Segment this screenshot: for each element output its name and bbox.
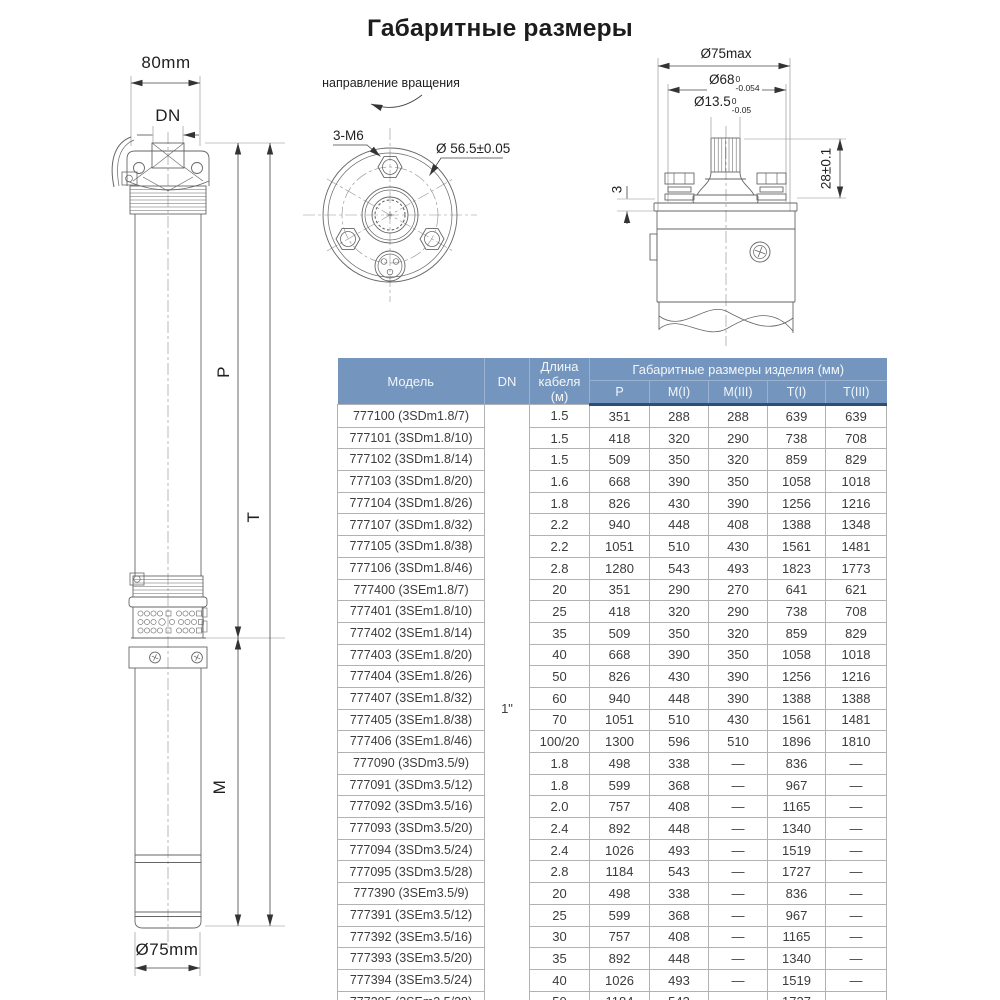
cell-miii: —: [709, 926, 768, 948]
table-row: 777107 (3SDm1.8/32)2.294044840813881348: [338, 514, 887, 536]
dim-d135-base: Ø13.5: [694, 94, 731, 109]
cell-mi: 543: [650, 861, 709, 883]
table-row: 777106 (3SDm1.8/46)2.8128054349318231773: [338, 557, 887, 579]
cell-miii: —: [709, 796, 768, 818]
cell-mi: 493: [650, 839, 709, 861]
cell-ti: 1519: [768, 969, 826, 991]
cell-mi: 510: [650, 709, 709, 731]
dim-d68-label: Ø680-0.054: [707, 72, 762, 95]
cell-model: 777403 (3SEm1.8/20): [338, 644, 485, 666]
cell-ti: 1165: [768, 796, 826, 818]
cell-ti: 639: [768, 405, 826, 428]
cell-model: 777093 (3SDm3.5/20): [338, 818, 485, 840]
cell-ti: 1340: [768, 818, 826, 840]
cell-ti: 738: [768, 427, 826, 449]
cell-model: 777394 (3SEm3.5/24): [338, 969, 485, 991]
cell-p: 826: [590, 666, 650, 688]
cell-ti: 1058: [768, 471, 826, 493]
cell-mi: 596: [650, 731, 709, 753]
cell-cable: 20: [530, 883, 590, 905]
cell-p: 1184: [590, 861, 650, 883]
cell-model: 777104 (3SDm1.8/26): [338, 492, 485, 514]
cell-ti: 1727: [768, 861, 826, 883]
table-row: 777401 (3SEm1.8/10)25418320290738708: [338, 601, 887, 623]
cell-p: 509: [590, 449, 650, 471]
cell-cable: 35: [530, 948, 590, 970]
cell-p: 757: [590, 796, 650, 818]
cell-tiii: —: [826, 818, 887, 840]
cell-p: 940: [590, 514, 650, 536]
dim-d68-lower-tol: -0.054: [736, 84, 760, 93]
table-row: 777393 (3SEm3.5/20)35892448—1340—: [338, 948, 887, 970]
col-header-p: P: [590, 381, 650, 405]
cell-mi: 408: [650, 926, 709, 948]
cell-cable: 60: [530, 687, 590, 709]
cell-miii: —: [709, 948, 768, 970]
bolt-spec-label: 3-М6: [331, 128, 366, 143]
cell-mi: 430: [650, 666, 709, 688]
dim-width-label: 80mm: [131, 53, 201, 73]
cell-ti: 1727: [768, 991, 826, 1000]
cell-tiii: 1388: [826, 687, 887, 709]
spec-table: Модель DN Длина кабеля (м) Габаритные ра…: [337, 358, 886, 1000]
table-row: 777392 (3SEm3.5/16)30757408—1165—: [338, 926, 887, 948]
cell-mi: 493: [650, 969, 709, 991]
cell-mi: 350: [650, 449, 709, 471]
table-row: 777402 (3SEm1.8/14)35509350320859829: [338, 622, 887, 644]
cell-miii: —: [709, 818, 768, 840]
cell-cable: 1.5: [530, 405, 590, 428]
cell-cable: 2.0: [530, 796, 590, 818]
cell-tiii: —: [826, 839, 887, 861]
cell-p: 418: [590, 427, 650, 449]
cell-p: 351: [590, 405, 650, 428]
cell-model: 777091 (3SDm3.5/12): [338, 774, 485, 796]
cell-ti: 1256: [768, 492, 826, 514]
cell-tiii: —: [826, 991, 887, 1000]
cell-cable: 1.8: [530, 774, 590, 796]
col-header-dn: DN: [485, 358, 530, 405]
cell-cable: 70: [530, 709, 590, 731]
cell-ti: 1561: [768, 536, 826, 558]
dim-diameter-label: Ø75mm: [112, 940, 222, 960]
table-row: 777102 (3SDm1.8/14)1.5509350320859829: [338, 449, 887, 471]
cell-model: 777090 (3SDm3.5/9): [338, 753, 485, 775]
table-row: 777104 (3SDm1.8/26)1.882643039012561216: [338, 492, 887, 514]
cell-tiii: —: [826, 926, 887, 948]
cell-mi: 338: [650, 753, 709, 775]
cell-p: 509: [590, 622, 650, 644]
cell-mi: 320: [650, 427, 709, 449]
cell-p: 351: [590, 579, 650, 601]
datasheet-page: Габаритные размеры: [0, 0, 1000, 1000]
table-row: 777101 (3SDm1.8/10)1.5418320290738708: [338, 427, 887, 449]
cell-p: 1300: [590, 731, 650, 753]
cell-p: 668: [590, 471, 650, 493]
cell-p: 892: [590, 948, 650, 970]
cell-model: 777407 (3SEm1.8/32): [338, 687, 485, 709]
cell-miii: 290: [709, 601, 768, 623]
cell-mi: 368: [650, 904, 709, 926]
table-row: 777395 (3SEm3.5/28)501184543—1727—: [338, 991, 887, 1000]
cell-mi: 448: [650, 514, 709, 536]
cell-tiii: —: [826, 904, 887, 926]
cell-miii: 290: [709, 427, 768, 449]
table-row: 777093 (3SDm3.5/20)2.4892448—1340—: [338, 818, 887, 840]
cell-model: 777105 (3SDm1.8/38): [338, 536, 485, 558]
col-header-dimensions-group: Габаритные размеры изделия (мм): [590, 358, 887, 381]
cell-cable: 2.8: [530, 557, 590, 579]
table-row: 777103 (3SDm1.8/20)1.666839035010581018: [338, 471, 887, 493]
cell-model: 777095 (3SDm3.5/28): [338, 861, 485, 883]
cell-cable: 2.4: [530, 818, 590, 840]
cell-cable: 1.8: [530, 492, 590, 514]
cell-ti: 738: [768, 601, 826, 623]
cell-cable: 2.4: [530, 839, 590, 861]
cell-ti: 1519: [768, 839, 826, 861]
cell-tiii: —: [826, 774, 887, 796]
cell-p: 1051: [590, 536, 650, 558]
cell-ti: 1340: [768, 948, 826, 970]
cell-mi: 543: [650, 991, 709, 1000]
cell-model: 777392 (3SEm3.5/16): [338, 926, 485, 948]
cell-miii: —: [709, 904, 768, 926]
cell-ti: 967: [768, 904, 826, 926]
cell-tiii: 1810: [826, 731, 887, 753]
cell-tiii: —: [826, 948, 887, 970]
cell-cable: 1.5: [530, 427, 590, 449]
table-row: 777406 (3SEm1.8/46)100/20130059651018961…: [338, 731, 887, 753]
cell-mi: 368: [650, 774, 709, 796]
table-row: 777394 (3SEm3.5/24)401026493—1519—: [338, 969, 887, 991]
table-row: 777094 (3SDm3.5/24)2.41026493—1519—: [338, 839, 887, 861]
table-row: 777400 (3SEm1.8/7)20351290270641621: [338, 579, 887, 601]
table-row: 777090 (3SDm3.5/9)1.8498338—836—: [338, 753, 887, 775]
cell-cable: 100/20: [530, 731, 590, 753]
table-row: 777105 (3SDm1.8/38)2.2105151043015611481: [338, 536, 887, 558]
cell-cable: 40: [530, 644, 590, 666]
cell-mi: 510: [650, 536, 709, 558]
cell-model: 777404 (3SEm1.8/26): [338, 666, 485, 688]
table-row: 777403 (3SEm1.8/20)4066839035010581018: [338, 644, 887, 666]
cell-tiii: 1481: [826, 536, 887, 558]
cell-cable: 20: [530, 579, 590, 601]
cell-cable: 1.8: [530, 753, 590, 775]
cell-tiii: 639: [826, 405, 887, 428]
cell-cable: 2.2: [530, 514, 590, 536]
col-header-ti: T(I): [768, 381, 826, 405]
cell-model: 777103 (3SDm1.8/20): [338, 471, 485, 493]
col-header-mi: M(I): [650, 381, 709, 405]
cell-model: 777400 (3SEm1.8/7): [338, 579, 485, 601]
cell-mi: 448: [650, 948, 709, 970]
cell-p: 1280: [590, 557, 650, 579]
table-row: 777407 (3SEm1.8/32)6094044839013881388: [338, 687, 887, 709]
cell-tiii: 1018: [826, 644, 887, 666]
cell-miii: —: [709, 774, 768, 796]
cell-mi: 448: [650, 818, 709, 840]
col-header-model: Модель: [338, 358, 485, 405]
cell-miii: —: [709, 883, 768, 905]
cell-mi: 543: [650, 557, 709, 579]
dim-height-label: 28±0.1: [819, 137, 834, 201]
table-row: 777405 (3SEm1.8/38)70105151043015611481: [338, 709, 887, 731]
table-row: 777391 (3SEm3.5/12)25599368—967—: [338, 904, 887, 926]
cell-cable: 35: [530, 622, 590, 644]
cell-mi: 390: [650, 644, 709, 666]
cell-cable: 50: [530, 991, 590, 1000]
cell-model: 777100 (3SDm1.8/7): [338, 405, 485, 428]
cell-model: 777405 (3SEm1.8/38): [338, 709, 485, 731]
dim-gap-label: 3: [610, 175, 625, 205]
cell-cable: 2.2: [530, 536, 590, 558]
table-row: 777091 (3SDm3.5/12)1.8599368—967—: [338, 774, 887, 796]
dim-p-label: P: [214, 355, 234, 389]
cell-cable: 1.6: [530, 471, 590, 493]
cell-tiii: 829: [826, 622, 887, 644]
cell-cable: 25: [530, 601, 590, 623]
cell-tiii: 1773: [826, 557, 887, 579]
pump-top-view: [303, 95, 503, 302]
bolt-circle-label: Ø 56.5±0.05: [434, 141, 512, 156]
cell-model: 777102 (3SDm1.8/14): [338, 449, 485, 471]
cell-model: 777107 (3SDm1.8/32): [338, 514, 485, 536]
col-header-miii: M(III): [709, 381, 768, 405]
table-row: 777390 (3SEm3.5/9)20498338—836—: [338, 883, 887, 905]
cell-model: 777395 (3SEm3.5/28): [338, 991, 485, 1000]
cell-miii: 390: [709, 492, 768, 514]
cell-tiii: 1481: [826, 709, 887, 731]
cell-ti: 859: [768, 622, 826, 644]
cell-p: 498: [590, 753, 650, 775]
cell-ti: 641: [768, 579, 826, 601]
cell-miii: 390: [709, 687, 768, 709]
dim-d75max-label: Ø75max: [682, 46, 770, 61]
dim-d68-base: Ø68: [709, 72, 735, 87]
cell-tiii: 1348: [826, 514, 887, 536]
cell-model: 777390 (3SEm3.5/9): [338, 883, 485, 905]
cell-mi: 448: [650, 687, 709, 709]
dim-d135-label: Ø13.50-0.05: [692, 94, 753, 117]
cell-miii: —: [709, 991, 768, 1000]
cell-ti: 1165: [768, 926, 826, 948]
rotation-direction-label: направление вращения: [306, 76, 476, 90]
cell-tiii: —: [826, 883, 887, 905]
cell-miii: 408: [709, 514, 768, 536]
cell-miii: 320: [709, 449, 768, 471]
dim-d135-lower-tol: -0.05: [732, 106, 751, 115]
dim-t-label: T: [244, 500, 264, 534]
cell-cable: 30: [530, 926, 590, 948]
cell-miii: 270: [709, 579, 768, 601]
cell-ti: 1388: [768, 514, 826, 536]
cell-model: 777401 (3SEm1.8/10): [338, 601, 485, 623]
cell-model: 777406 (3SEm1.8/46): [338, 731, 485, 753]
cell-p: 892: [590, 818, 650, 840]
cell-model: 777092 (3SDm3.5/16): [338, 796, 485, 818]
cell-p: 1184: [590, 991, 650, 1000]
cell-cable: 1.5: [530, 449, 590, 471]
cell-miii: 288: [709, 405, 768, 428]
cell-tiii: —: [826, 796, 887, 818]
cell-p: 498: [590, 883, 650, 905]
cell-p: 1026: [590, 839, 650, 861]
cell-mi: 290: [650, 579, 709, 601]
cell-ti: 1058: [768, 644, 826, 666]
cell-mi: 288: [650, 405, 709, 428]
cell-miii: 350: [709, 644, 768, 666]
cell-tiii: —: [826, 861, 887, 883]
dim-outlet-label: DN: [138, 106, 198, 126]
cell-p: 599: [590, 774, 650, 796]
table-row: 777092 (3SDm3.5/16)2.0757408—1165—: [338, 796, 887, 818]
cell-p: 826: [590, 492, 650, 514]
cell-ti: 967: [768, 774, 826, 796]
cell-miii: 390: [709, 666, 768, 688]
cell-mi: 338: [650, 883, 709, 905]
cell-ti: 1896: [768, 731, 826, 753]
cell-p: 940: [590, 687, 650, 709]
cell-cable: 50: [530, 666, 590, 688]
cell-cable: 2.8: [530, 861, 590, 883]
cell-p: 418: [590, 601, 650, 623]
col-header-cable: Длина кабеля (м): [530, 358, 590, 405]
table-row: 777404 (3SEm1.8/26)5082643039012561216: [338, 666, 887, 688]
cell-mi: 390: [650, 471, 709, 493]
cell-tiii: 708: [826, 427, 887, 449]
cell-tiii: 1018: [826, 471, 887, 493]
cell-tiii: 621: [826, 579, 887, 601]
cell-p: 599: [590, 904, 650, 926]
cell-cable: 25: [530, 904, 590, 926]
cell-mi: 350: [650, 622, 709, 644]
cell-ti: 1388: [768, 687, 826, 709]
cell-model: 777094 (3SDm3.5/24): [338, 839, 485, 861]
cell-ti: 1561: [768, 709, 826, 731]
cell-miii: —: [709, 861, 768, 883]
cell-model: 777393 (3SEm3.5/20): [338, 948, 485, 970]
cell-tiii: 829: [826, 449, 887, 471]
cell-model: 777391 (3SEm3.5/12): [338, 904, 485, 926]
cell-mi: 320: [650, 601, 709, 623]
cell-tiii: —: [826, 969, 887, 991]
cell-mi: 408: [650, 796, 709, 818]
cell-miii: 350: [709, 471, 768, 493]
cell-miii: 493: [709, 557, 768, 579]
cell-miii: 510: [709, 731, 768, 753]
cell-miii: 320: [709, 622, 768, 644]
cell-p: 1051: [590, 709, 650, 731]
cell-cable: 40: [530, 969, 590, 991]
cell-miii: —: [709, 969, 768, 991]
cell-p: 757: [590, 926, 650, 948]
table-body: 777100 (3SDm1.8/7)1"1.535128828863963977…: [338, 405, 887, 1000]
dim-m-label: M: [210, 770, 230, 804]
cell-tiii: 708: [826, 601, 887, 623]
table-row: 777100 (3SDm1.8/7)1"1.5351288288639639: [338, 405, 887, 428]
cell-p: 668: [590, 644, 650, 666]
cell-miii: 430: [709, 536, 768, 558]
cell-model: 777101 (3SDm1.8/10): [338, 427, 485, 449]
cell-ti: 1823: [768, 557, 826, 579]
cell-miii: 430: [709, 709, 768, 731]
cell-mi: 430: [650, 492, 709, 514]
cell-ti: 859: [768, 449, 826, 471]
cell-model: 777106 (3SDm1.8/46): [338, 557, 485, 579]
table-row: 777095 (3SDm3.5/28)2.81184543—1727—: [338, 861, 887, 883]
cell-model: 777402 (3SEm1.8/14): [338, 622, 485, 644]
cell-tiii: 1216: [826, 492, 887, 514]
cell-miii: —: [709, 839, 768, 861]
col-header-tiii: T(III): [826, 381, 887, 405]
cell-tiii: 1216: [826, 666, 887, 688]
cell-ti: 836: [768, 883, 826, 905]
cell-tiii: —: [826, 753, 887, 775]
cell-dn-merged: 1": [485, 405, 530, 1000]
cell-miii: —: [709, 753, 768, 775]
cell-ti: 1256: [768, 666, 826, 688]
cell-ti: 836: [768, 753, 826, 775]
cell-p: 1026: [590, 969, 650, 991]
